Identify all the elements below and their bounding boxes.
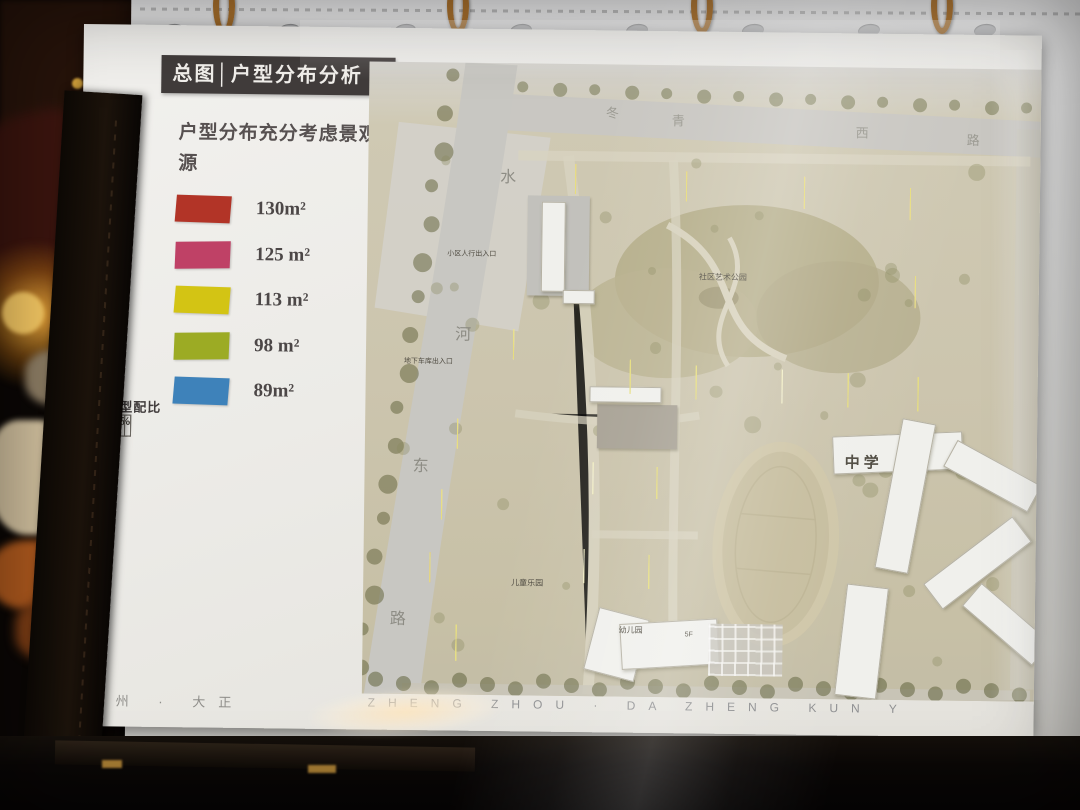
map-tree [437,105,453,121]
poi-label: 中学 [845,451,883,472]
map-tree [412,290,425,303]
map-tree [841,95,855,109]
map-tree [732,680,747,695]
poi-label: 社区艺术公园 [699,272,747,284]
map-tree [710,385,723,398]
poi-label: 小区人行出入口 [447,248,496,259]
map-tree [536,674,551,689]
map-tree [903,585,915,597]
map-tree [704,676,719,691]
legend-swatch [172,377,229,406]
background-lamp-bulb [2,292,44,334]
map-tree [648,679,663,694]
road-label-left: 水 [500,163,516,187]
legend-swatch [173,332,229,359]
legend-item: 89m² [173,377,393,410]
parking-grid [708,624,783,677]
legend-item: 98 m² [174,332,394,365]
zipper-glint [102,760,122,768]
map-tree [755,211,764,220]
map-tree [805,94,816,105]
map-tree [744,416,760,432]
road-label-left: 东 [413,452,429,476]
map-tree [816,681,831,696]
poi-label: 幼儿园 [619,625,643,636]
map-tree [433,613,444,624]
binder-page: 总图│户型分布分析 户型分布充分考虑景观资源 130m²125 m²113 m²… [75,24,1042,738]
map-tree [858,289,871,302]
map-tree [697,89,711,103]
map-tree [692,159,701,168]
entrance-tower [541,202,566,292]
map-tree [661,88,672,99]
map-tree [449,422,461,434]
map-tree [396,442,409,455]
map-tree [788,677,803,692]
road-label-top: 青 [672,110,685,129]
sleeve-glare-top [300,20,1000,80]
road-label-top: 冬 [606,102,619,121]
poi-label: 儿童乐园 [511,577,543,588]
community-center-building [597,404,678,449]
legend-swatch [174,286,231,315]
zipper-glint [308,765,336,773]
road-label-left: 路 [390,605,406,629]
legend-label: 113 m² [255,289,309,312]
map-tree [956,679,971,694]
legend-swatch [175,241,231,268]
entrance-gate [563,290,595,304]
legend-item: 125 m² [175,241,395,274]
photo-scene: 总图│户型分布分析 户型分布充分考虑景观资源 130m²125 m²113 m²… [0,0,1080,810]
watermark-chinese: 郑州 · 大正 [90,690,245,711]
legend-swatch [175,195,232,224]
map-tree [402,327,418,343]
legend-item: 130m² [176,195,396,228]
legend-item: 113 m² [174,286,394,319]
map-tree [562,581,571,590]
legend-label: 125 m² [255,244,310,267]
legend-label: 130m² [256,198,306,221]
map-tree [600,211,612,223]
map-tree [390,401,403,414]
community-center-roof [589,386,661,403]
map-tree [904,299,912,307]
map-tree [450,283,459,292]
map-tree [932,656,942,666]
sleeve-glare-right [990,50,1045,700]
legend-label: 89m² [253,380,294,402]
road-label-left: 河 [455,321,471,345]
map-tree [968,164,985,181]
map-tree [900,682,915,697]
road-label-top: 路 [967,130,980,149]
poi-label: 地下车库出入口 [404,356,453,367]
unit-area-legend: 130m²125 m²113 m²98 m²89m² [173,195,396,438]
map-tree [564,678,579,693]
map-tree [733,91,744,102]
site-plan-map: 水河东路冬青西路中学幼儿园5F儿童乐园社区艺术公园小区人行出入口地下车库出入口 [362,61,1042,701]
map-tree [377,512,390,525]
map-tree [368,672,383,687]
light-dot [72,78,83,89]
legend-label: 98 m² [254,335,300,358]
road-label-top: 西 [856,122,869,141]
poi-label: 5F [685,631,693,638]
map-tree [850,372,866,388]
map-tree [647,267,655,275]
map-tree [423,216,439,232]
map-tree [769,92,783,106]
